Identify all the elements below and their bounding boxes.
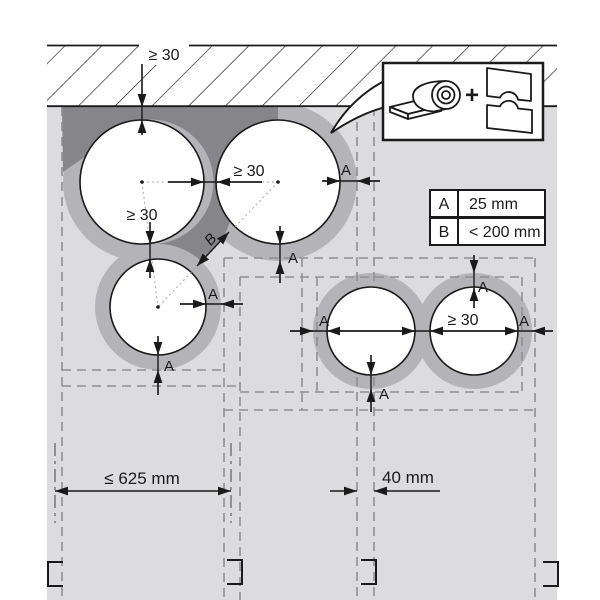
a-label-below-pipe2: A — [288, 250, 298, 267]
a-label-below-pipe4: A — [379, 386, 389, 403]
legend-value-b: < 200 mm — [469, 224, 541, 241]
pipe-clearance-diagram: ≥ 30 ≥ 30 ≥ 30 ≥ 30 A A A A A A A A B ≤ … — [0, 0, 600, 600]
stud-spacing-label: ≤ 625 mm — [104, 469, 179, 488]
plus-icon: + — [465, 82, 479, 109]
gap-1-3-label: ≥ 30 — [126, 207, 157, 224]
legend-key-b: B — [439, 224, 450, 241]
a-label-right-pipe2: A — [341, 162, 351, 179]
gap-4-5-label: ≥ 30 — [447, 312, 478, 329]
diagram-stage: ≥ 30 ≥ 30 ≥ 30 ≥ 30 A A A A A A A A B ≤ … — [0, 0, 600, 600]
legend-key-a: A — [439, 196, 450, 213]
a-label-left-pipe4: A — [319, 313, 329, 330]
legend-value-a: 25 mm — [469, 196, 518, 213]
a-label-right-pipe5: A — [519, 313, 529, 330]
gap-1-2-label: ≥ 30 — [233, 163, 264, 180]
a-label-above-pipe5: A — [478, 279, 488, 296]
legend-table: A 25 mm B < 200 mm — [430, 190, 545, 245]
a-label-right-pipe3: A — [208, 286, 218, 303]
top-clearance-label: ≥ 30 — [148, 47, 179, 64]
a-label-below-pipe3: A — [164, 358, 174, 375]
stud-width-label: 40 mm — [382, 468, 434, 487]
